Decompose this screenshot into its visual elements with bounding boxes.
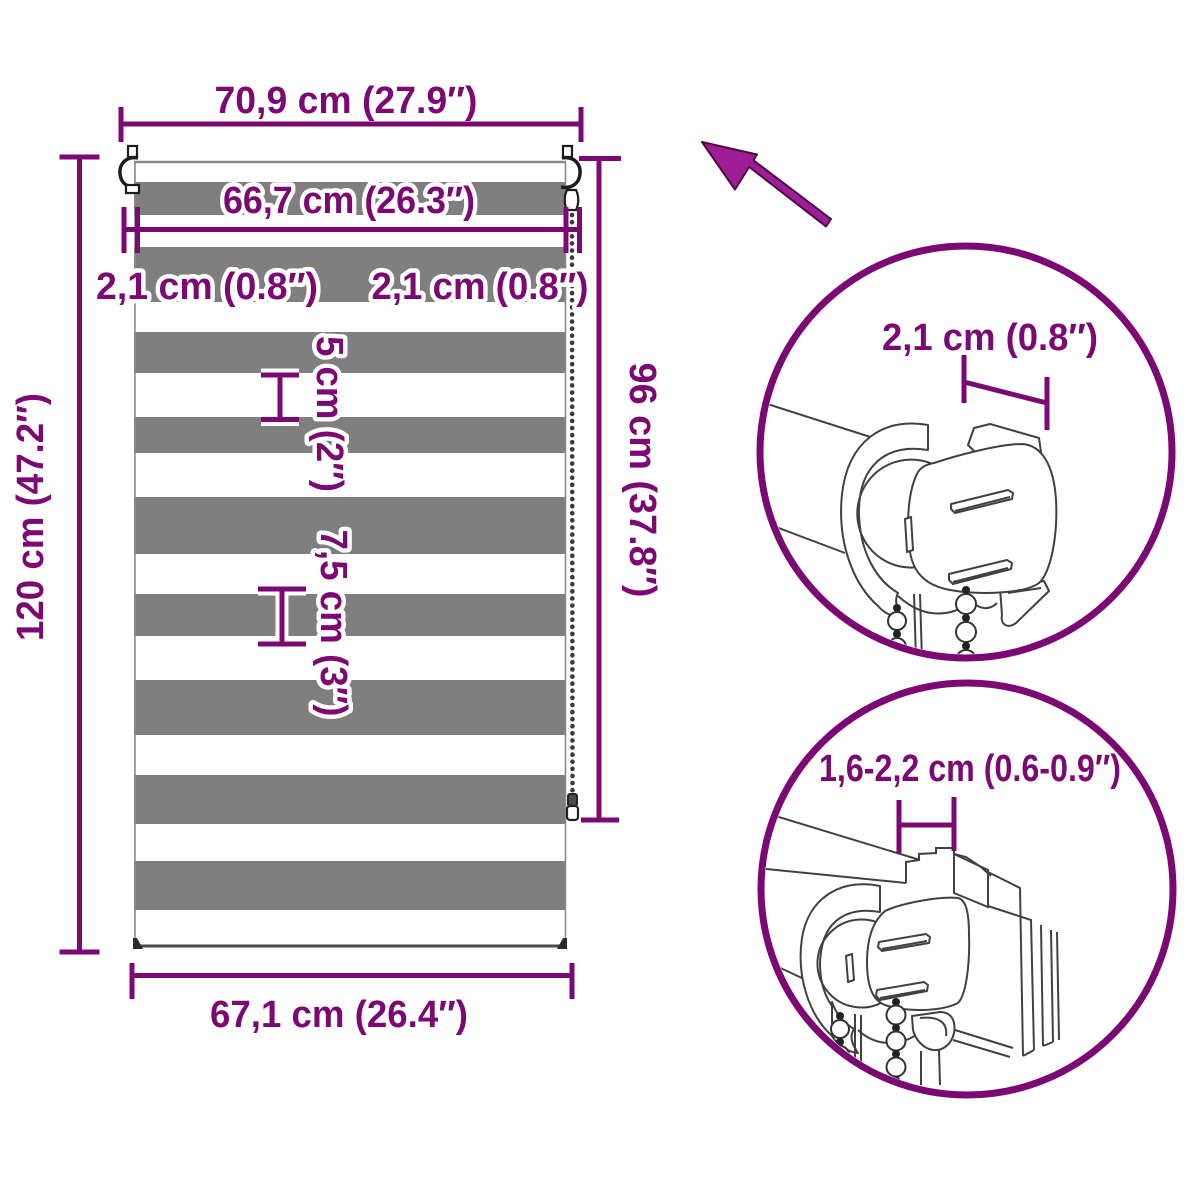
svg-text:96 cm (37.8″): 96 cm (37.8″): [621, 363, 663, 598]
svg-text:2,1 cm (0.8″): 2,1 cm (0.8″): [96, 266, 318, 308]
svg-text:2,1 cm (0.8″): 2,1 cm (0.8″): [372, 266, 589, 308]
svg-text:67,1 cm (26.4″): 67,1 cm (26.4″): [210, 994, 468, 1036]
svg-text:1,6-2,2 cm (0.6-0.9″): 1,6-2,2 cm (0.6-0.9″): [819, 748, 1121, 790]
svg-text:70,9 cm (27.9″): 70,9 cm (27.9″): [215, 80, 478, 122]
svg-text:7,5 cm (3″): 7,5 cm (3″): [312, 530, 354, 717]
svg-text:2,1 cm (0.8″): 2,1 cm (0.8″): [882, 317, 1098, 359]
svg-text:120 cm (47.2″): 120 cm (47.2″): [10, 393, 52, 641]
svg-text:5 cm (2″): 5 cm (2″): [308, 336, 350, 492]
svg-text:66,7 cm (26.3″): 66,7 cm (26.3″): [223, 180, 475, 222]
